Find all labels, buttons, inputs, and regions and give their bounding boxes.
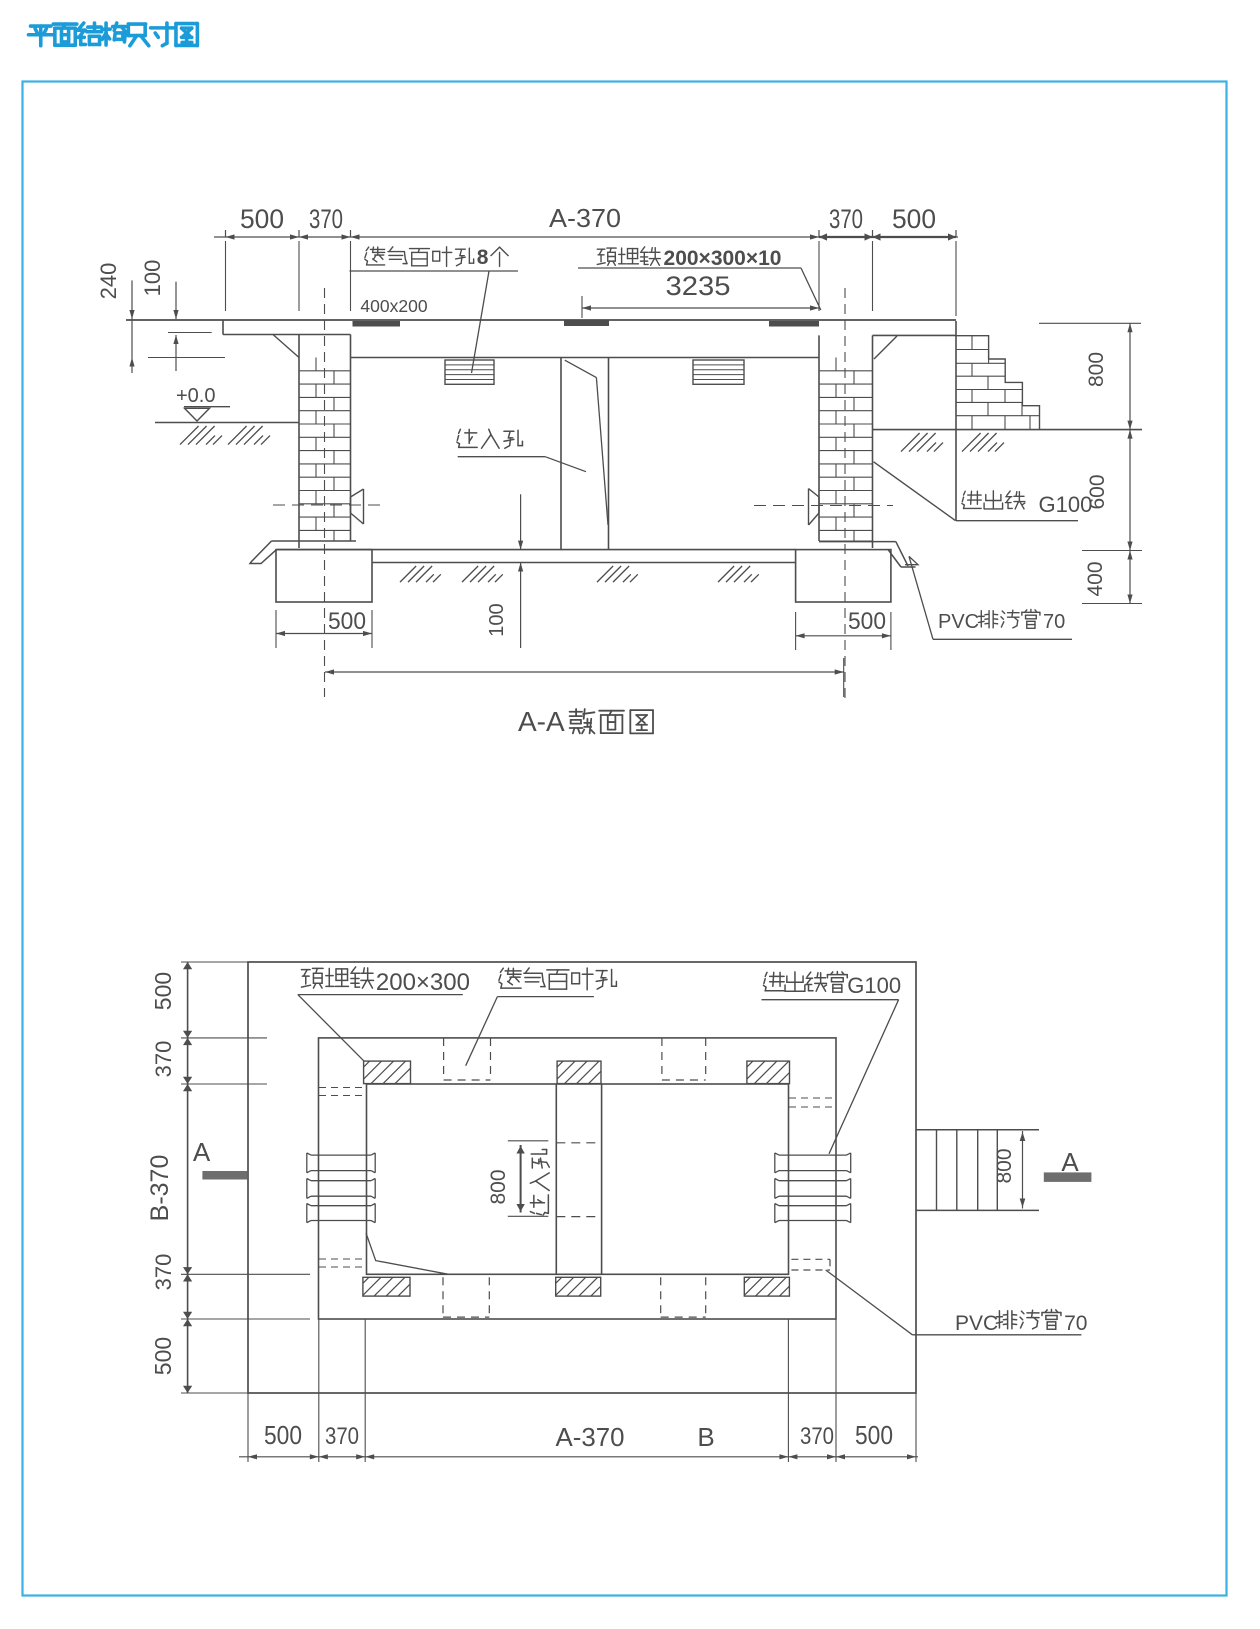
svg-text:800: 800: [993, 1148, 1016, 1183]
svg-text:370: 370: [151, 1041, 176, 1078]
svg-text:500: 500: [240, 204, 284, 234]
svg-text:500: 500: [150, 972, 176, 1010]
svg-text:500: 500: [848, 608, 886, 635]
svg-text:PVC: PVC: [955, 1312, 998, 1335]
svg-text:200×300×10: 200×300×10: [664, 247, 782, 270]
svg-text:8: 8: [477, 246, 489, 269]
svg-text:370: 370: [829, 204, 863, 234]
svg-text:A-370: A-370: [549, 203, 621, 233]
svg-text:400: 400: [1084, 561, 1107, 596]
svg-text:500: 500: [150, 1337, 176, 1375]
svg-text:800: 800: [1085, 352, 1108, 387]
svg-text:70: 70: [1043, 611, 1065, 633]
svg-text:370: 370: [309, 204, 343, 234]
svg-text:100: 100: [486, 603, 508, 636]
svg-text:500: 500: [892, 204, 936, 234]
svg-text:500: 500: [328, 608, 366, 635]
svg-text:70: 70: [1064, 1312, 1087, 1335]
svg-text:200×300: 200×300: [376, 969, 470, 996]
svg-text:A-370: A-370: [556, 1422, 625, 1452]
svg-text:A-A: A-A: [518, 706, 565, 737]
svg-text:B-370: B-370: [146, 1155, 174, 1222]
svg-text:B: B: [697, 1422, 714, 1452]
svg-text:G100: G100: [847, 973, 901, 998]
svg-text:G100: G100: [1039, 492, 1093, 517]
svg-text:400x200: 400x200: [360, 296, 427, 316]
svg-text:370: 370: [800, 1423, 834, 1450]
svg-text:500: 500: [264, 1420, 302, 1450]
svg-text:3235: 3235: [666, 271, 731, 301]
svg-text:370: 370: [151, 1254, 176, 1291]
svg-text:240: 240: [96, 263, 121, 300]
svg-text:100: 100: [140, 260, 165, 297]
svg-text:500: 500: [855, 1420, 893, 1450]
svg-text:PVC: PVC: [938, 611, 979, 633]
svg-text:A: A: [193, 1137, 211, 1167]
svg-text:600: 600: [1086, 474, 1109, 509]
svg-text:370: 370: [325, 1423, 359, 1450]
svg-text:800: 800: [487, 1169, 510, 1204]
svg-text:+0.0: +0.0: [176, 385, 215, 407]
